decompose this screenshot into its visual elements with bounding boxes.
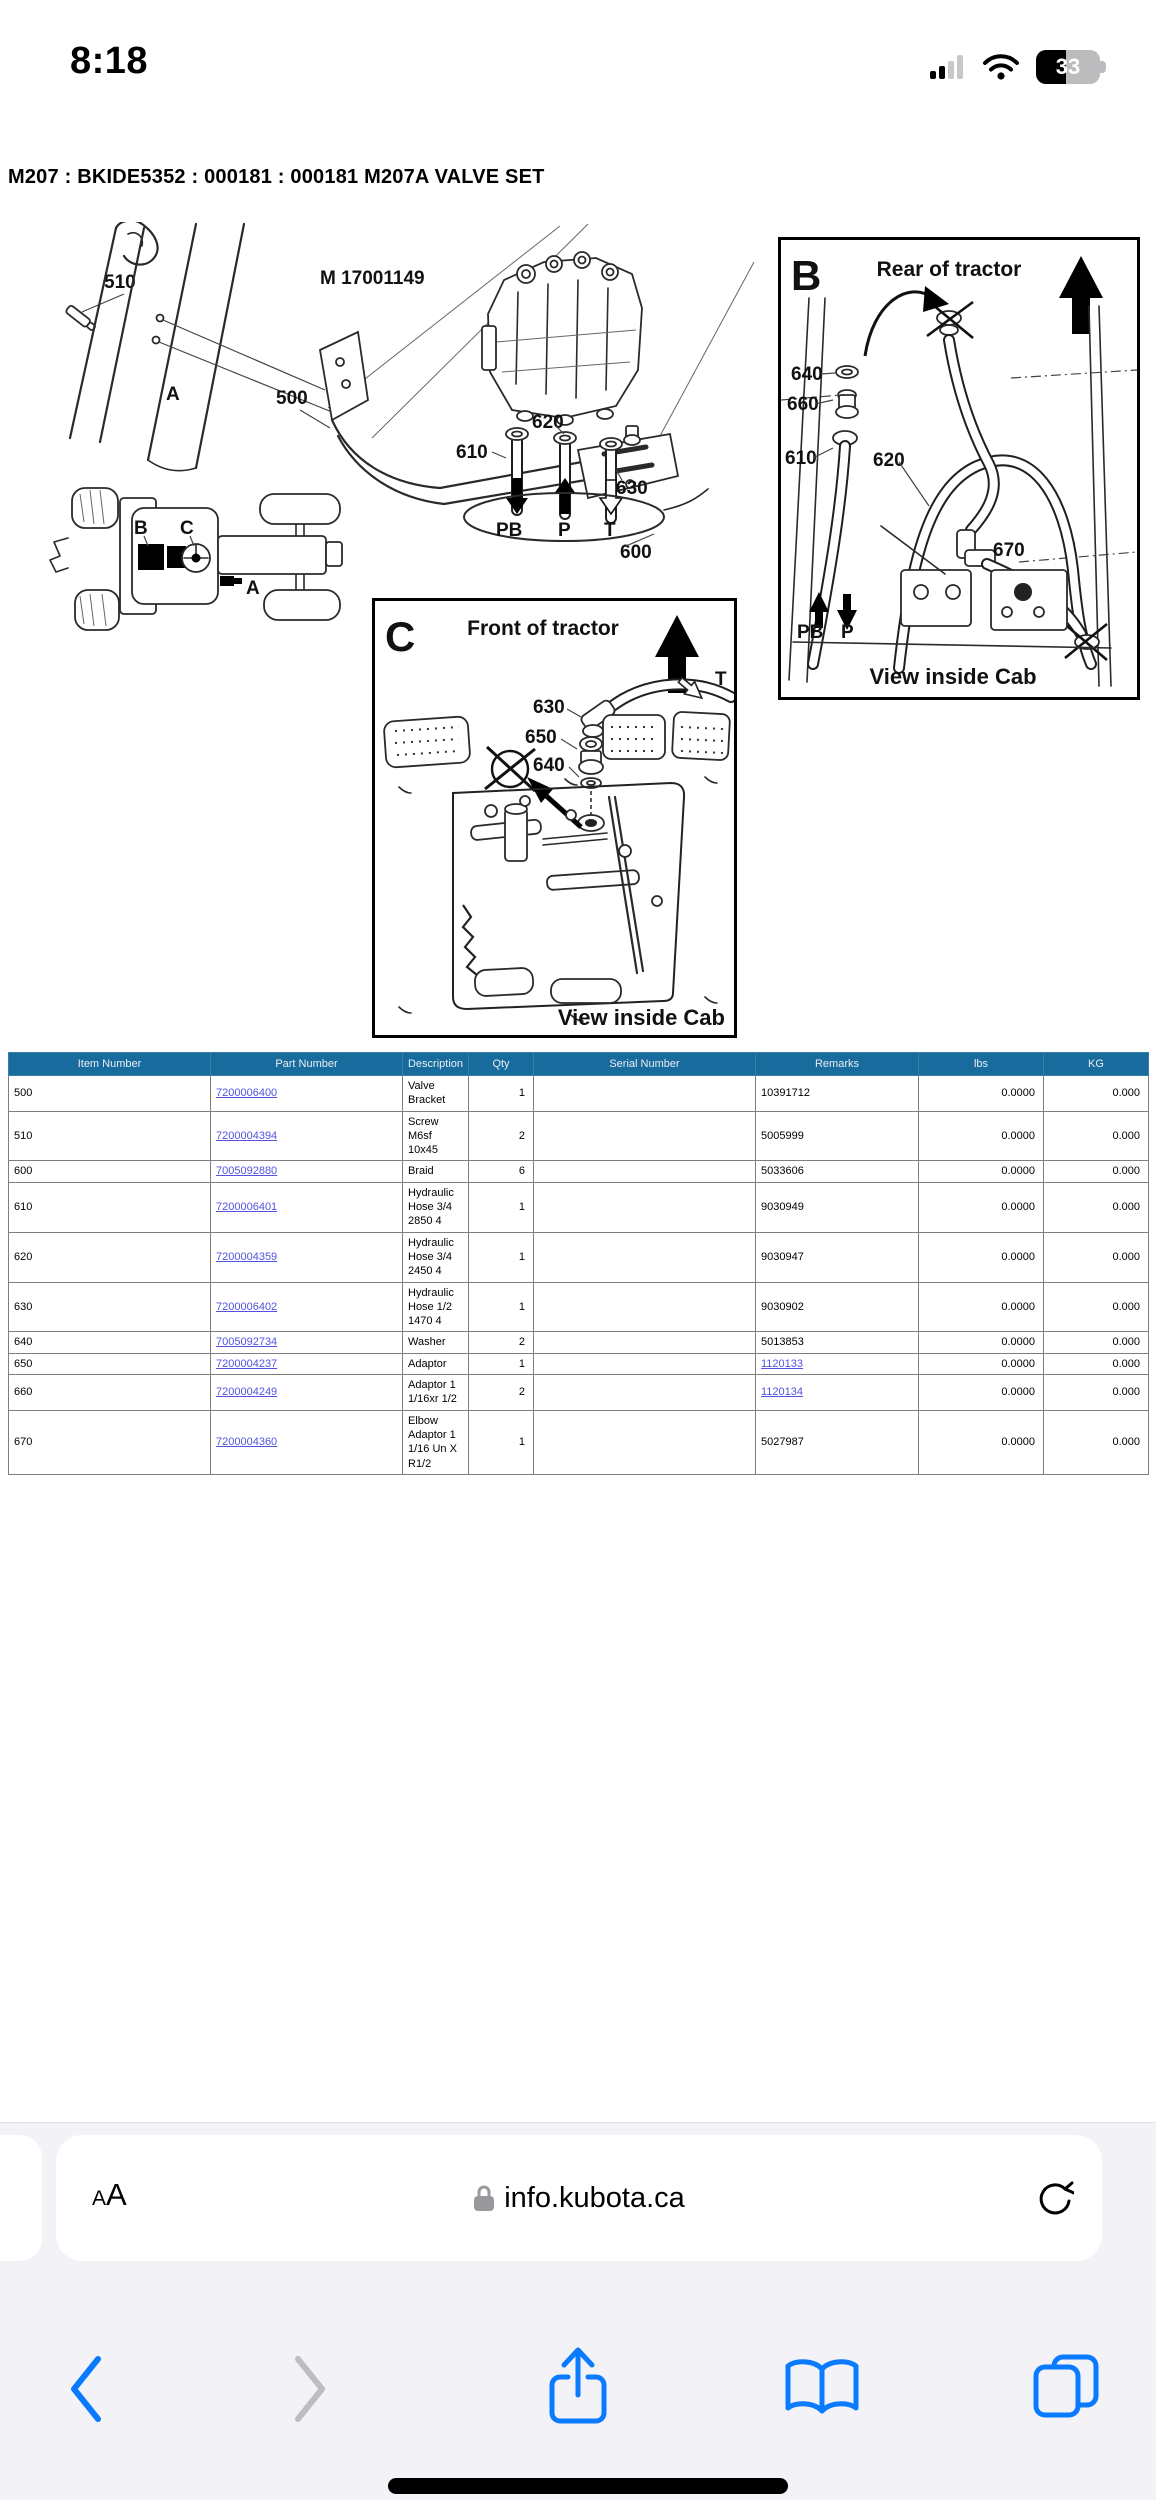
desc-cell: Hydraulic Hose 3/4 2450 4 <box>403 1232 469 1282</box>
table-row: 620 7200004359 Hydraulic Hose 3/4 2450 4… <box>9 1232 1149 1282</box>
item-cell: 610 <box>9 1182 211 1232</box>
label-a: A <box>166 384 180 405</box>
lbs-cell: 0.0000 <box>919 1161 1044 1182</box>
lbs-cell: 0.0000 <box>919 1076 1044 1112</box>
serial-cell <box>534 1232 756 1282</box>
diagram-section-a: M 17001149 510 A 500 <box>20 222 775 654</box>
col-description: Description <box>403 1053 469 1076</box>
battery-icon: 33 <box>1036 50 1106 84</box>
port-t-c: T <box>715 669 727 690</box>
tractor-label-b: B <box>134 518 148 539</box>
remarks-cell: 5027987 <box>756 1410 919 1474</box>
callout-610: 610 <box>456 442 488 463</box>
remarks-cell: 9030947 <box>756 1232 919 1282</box>
table-row: 600 7005092880 Braid 6 5033606 0.0000 0.… <box>9 1161 1149 1182</box>
remarks-cell: 5033606 <box>756 1161 919 1182</box>
item-cell: 670 <box>9 1410 211 1474</box>
qty-cell: 1 <box>469 1282 534 1332</box>
port-p-b: P <box>841 622 854 643</box>
col-lbs: lbs <box>919 1053 1044 1076</box>
table-row: 510 7200004394 Screw M6sf 10x45 2 500599… <box>9 1111 1149 1161</box>
lbs-cell: 0.0000 <box>919 1410 1044 1474</box>
callout-650: 650 <box>525 727 557 748</box>
serial-cell <box>534 1161 756 1182</box>
part-cell: 7200006400 <box>211 1076 403 1112</box>
tractor-label-a: A <box>246 578 260 599</box>
wifi-icon <box>982 53 1020 81</box>
lbs-cell: 0.0000 <box>919 1375 1044 1411</box>
col-serial-number: Serial Number <box>534 1053 756 1076</box>
qty-cell: 2 <box>469 1375 534 1411</box>
remarks-cell: 9030949 <box>756 1182 919 1232</box>
item-cell: 510 <box>9 1111 211 1161</box>
port-t: T <box>604 520 616 541</box>
screw-drawing <box>65 305 97 332</box>
status-icons: 33 <box>930 50 1106 84</box>
page-title: M207 : BKIDE5352 : 000181 : 000181 M207A… <box>8 166 545 189</box>
desc-cell: Screw M6sf 10x45 <box>403 1111 469 1161</box>
url-field[interactable]: info.kubota.ca <box>473 2182 685 2215</box>
serial-cell <box>534 1410 756 1474</box>
port-pb-b: PB <box>797 622 823 643</box>
forward-button[interactable] <box>286 2351 334 2427</box>
lbs-cell: 0.0000 <box>919 1353 1044 1374</box>
table-row: 500 7200006400 Valve Bracket 1 10391712 … <box>9 1076 1149 1112</box>
part-cell: 7200006402 <box>211 1282 403 1332</box>
reload-button[interactable] <box>1034 2179 1074 2226</box>
part-cell: 7200006401 <box>211 1182 403 1232</box>
remarks-link[interactable]: 1120134 <box>761 1386 803 1398</box>
tractor-top-view: B C A <box>50 488 342 630</box>
panel-c: C Front of tractor T 630 650 640 <box>372 598 737 1038</box>
part-number-link[interactable]: 7200004394 <box>216 1130 277 1142</box>
item-cell: 500 <box>9 1076 211 1112</box>
part-number-link[interactable]: 7200006402 <box>216 1301 277 1313</box>
part-number-link[interactable]: 7200004360 <box>216 1436 277 1448</box>
qty-cell: 2 <box>469 1111 534 1161</box>
reader-options-button[interactable]: AA <box>92 2135 127 2261</box>
item-cell: 620 <box>9 1232 211 1282</box>
panel-b-drawing: B Rear of tractor 640 660 610 620 670 PB… <box>781 240 1137 697</box>
col-remarks: Remarks <box>756 1053 919 1076</box>
kg-cell: 0.000 <box>1044 1353 1149 1374</box>
part-number-link[interactable]: 7200006401 <box>216 1201 277 1213</box>
part-cell: 7200004359 <box>211 1232 403 1282</box>
serial-cell <box>534 1182 756 1232</box>
reader-label-large: A <box>106 2177 127 2213</box>
callout-640-b: 640 <box>791 364 823 385</box>
callout-610-b: 610 <box>785 448 817 469</box>
callout-630-c: 630 <box>533 697 565 718</box>
part-number-link[interactable]: 7200004359 <box>216 1251 277 1263</box>
direction-arrow-up <box>1059 256 1103 334</box>
table-row: 610 7200006401 Hydraulic Hose 3/4 2850 4… <box>9 1182 1149 1232</box>
bookmarks-button[interactable] <box>782 2355 862 2423</box>
panel-c-drawing: C Front of tractor T 630 650 640 <box>375 601 734 1035</box>
part-number-link[interactable]: 7200004249 <box>216 1386 277 1398</box>
remarks-link[interactable]: 1120133 <box>761 1358 803 1370</box>
part-number-link[interactable]: 7005092734 <box>216 1336 277 1348</box>
qty-cell: 2 <box>469 1332 534 1353</box>
remarks-cell: 10391712 <box>756 1076 919 1112</box>
lbs-cell: 0.0000 <box>919 1282 1044 1332</box>
item-cell: 600 <box>9 1161 211 1182</box>
remarks-cell: 5005999 <box>756 1111 919 1161</box>
table-row: 650 7200004237 Adaptor 1 1120133 0.0000 … <box>9 1353 1149 1374</box>
kg-cell: 0.000 <box>1044 1076 1149 1112</box>
table-row: 630 7200006402 Hydraulic Hose 1/2 1470 4… <box>9 1282 1149 1332</box>
panel-c-heading: Front of tractor <box>467 617 619 640</box>
tabs-button[interactable] <box>1028 2351 1104 2423</box>
callout-630: 630 <box>616 478 648 499</box>
part-cell: 7200004394 <box>211 1111 403 1161</box>
callout-600: 600 <box>620 542 652 563</box>
back-button[interactable] <box>62 2351 110 2427</box>
desc-cell: Washer <box>403 1332 469 1353</box>
remarks-cell: 1120134 <box>756 1375 919 1411</box>
kg-cell: 0.000 <box>1044 1232 1149 1282</box>
col-item-number: Item Number <box>9 1053 211 1076</box>
item-cell: 650 <box>9 1353 211 1374</box>
panel-b-footer: View inside Cab <box>869 664 1036 689</box>
callout-620-b: 620 <box>873 450 905 471</box>
reader-label-small: A <box>92 2187 106 2211</box>
kg-cell: 0.000 <box>1044 1282 1149 1332</box>
col-kg: KG <box>1044 1053 1149 1076</box>
serial-cell <box>534 1375 756 1411</box>
kg-cell: 0.000 <box>1044 1332 1149 1353</box>
callout-640-c: 640 <box>533 755 565 776</box>
qty-cell: 1 <box>469 1182 534 1232</box>
qty-cell: 1 <box>469 1353 534 1374</box>
qty-cell: 1 <box>469 1232 534 1282</box>
table-header-row: Item Number Part Number Description Qty … <box>9 1053 1149 1076</box>
figure-code: M 17001149 <box>320 268 425 289</box>
share-button[interactable] <box>544 2341 612 2429</box>
desc-cell: Braid <box>403 1161 469 1182</box>
table-row: 640 7005092734 Washer 2 5013853 0.0000 0… <box>9 1332 1149 1353</box>
qty-cell: 1 <box>469 1410 534 1474</box>
serial-cell <box>534 1111 756 1161</box>
lbs-cell: 0.0000 <box>919 1111 1044 1161</box>
remarks-cell: 9030902 <box>756 1282 919 1332</box>
home-indicator[interactable] <box>388 2478 788 2494</box>
panel-b-heading: Rear of tractor <box>877 258 1022 281</box>
panel-c-footer: View inside Cab <box>558 1005 725 1030</box>
battery-percent: 33 <box>1036 50 1100 84</box>
part-cell: 7200004237 <box>211 1353 403 1374</box>
panel-c-letter: C <box>385 613 415 660</box>
kg-cell: 0.000 <box>1044 1161 1149 1182</box>
callout-620: 620 <box>532 412 564 433</box>
callout-660-b: 660 <box>787 394 819 415</box>
item-cell: 660 <box>9 1375 211 1411</box>
col-qty: Qty <box>469 1053 534 1076</box>
serial-cell <box>534 1332 756 1353</box>
lbs-cell: 0.0000 <box>919 1232 1044 1282</box>
desc-cell: Valve Bracket <box>403 1076 469 1112</box>
part-number-link[interactable]: 7200006400 <box>216 1087 277 1099</box>
col-part-number: Part Number <box>211 1053 403 1076</box>
item-cell: 640 <box>9 1332 211 1353</box>
part-number-link[interactable]: 7005092880 <box>216 1165 277 1177</box>
safari-toolbar: AA info.kubota.ca <box>0 2122 1156 2500</box>
remarks-cell: 5013853 <box>756 1332 919 1353</box>
kg-cell: 0.000 <box>1044 1375 1149 1411</box>
adjacent-tab-edge <box>0 2135 42 2261</box>
item-cell: 630 <box>9 1282 211 1332</box>
valve-set-diagram: M 17001149 510 A 500 <box>20 222 775 654</box>
callout-670: 670 <box>993 540 1025 561</box>
serial-cell <box>534 1353 756 1374</box>
part-cell: 7200004360 <box>211 1410 403 1474</box>
cellular-signal-icon <box>930 54 966 80</box>
kg-cell: 0.000 <box>1044 1410 1149 1474</box>
part-cell: 7005092734 <box>211 1332 403 1353</box>
panel-b: B Rear of tractor 640 660 610 620 670 PB… <box>778 237 1140 700</box>
lock-icon <box>473 2183 495 2213</box>
serial-cell <box>534 1076 756 1112</box>
lbs-cell: 0.0000 <box>919 1182 1044 1232</box>
part-number-link[interactable]: 7200004237 <box>216 1358 277 1370</box>
desc-cell: Hydraulic Hose 1/2 1470 4 <box>403 1282 469 1332</box>
panel-b-letter: B <box>791 252 821 299</box>
part-cell: 7200004249 <box>211 1375 403 1411</box>
serial-cell <box>534 1282 756 1332</box>
qty-cell: 1 <box>469 1076 534 1112</box>
desc-cell: Adaptor <box>403 1353 469 1374</box>
desc-cell: Adaptor 1 1/16xr 1/2 <box>403 1375 469 1411</box>
part-cell: 7005092880 <box>211 1161 403 1182</box>
lbs-cell: 0.0000 <box>919 1332 1044 1353</box>
valve-block-drawing <box>488 258 642 418</box>
port-pb: PB <box>496 520 522 541</box>
desc-cell: Elbow Adaptor 1 1/16 Un X R1/2 <box>403 1410 469 1474</box>
kg-cell: 0.000 <box>1044 1182 1149 1232</box>
table-row: 660 7200004249 Adaptor 1 1/16xr 1/2 2 11… <box>9 1375 1149 1411</box>
reload-icon <box>1034 2179 1074 2221</box>
address-bar[interactable]: AA info.kubota.ca <box>56 2135 1102 2261</box>
qty-cell: 6 <box>469 1161 534 1182</box>
tractor-label-c: C <box>180 518 194 539</box>
table-row: 670 7200004360 Elbow Adaptor 1 1/16 Un X… <box>9 1410 1149 1474</box>
url-domain: info.kubota.ca <box>504 2182 685 2215</box>
remarks-cell: 1120133 <box>756 1353 919 1374</box>
port-p: P <box>558 520 571 541</box>
desc-cell: Hydraulic Hose 3/4 2850 4 <box>403 1182 469 1232</box>
callout-500: 500 <box>276 388 308 409</box>
kg-cell: 0.000 <box>1044 1111 1149 1161</box>
status-time: 8:18 <box>70 40 148 83</box>
parts-table: Item Number Part Number Description Qty … <box>8 1052 1149 1475</box>
